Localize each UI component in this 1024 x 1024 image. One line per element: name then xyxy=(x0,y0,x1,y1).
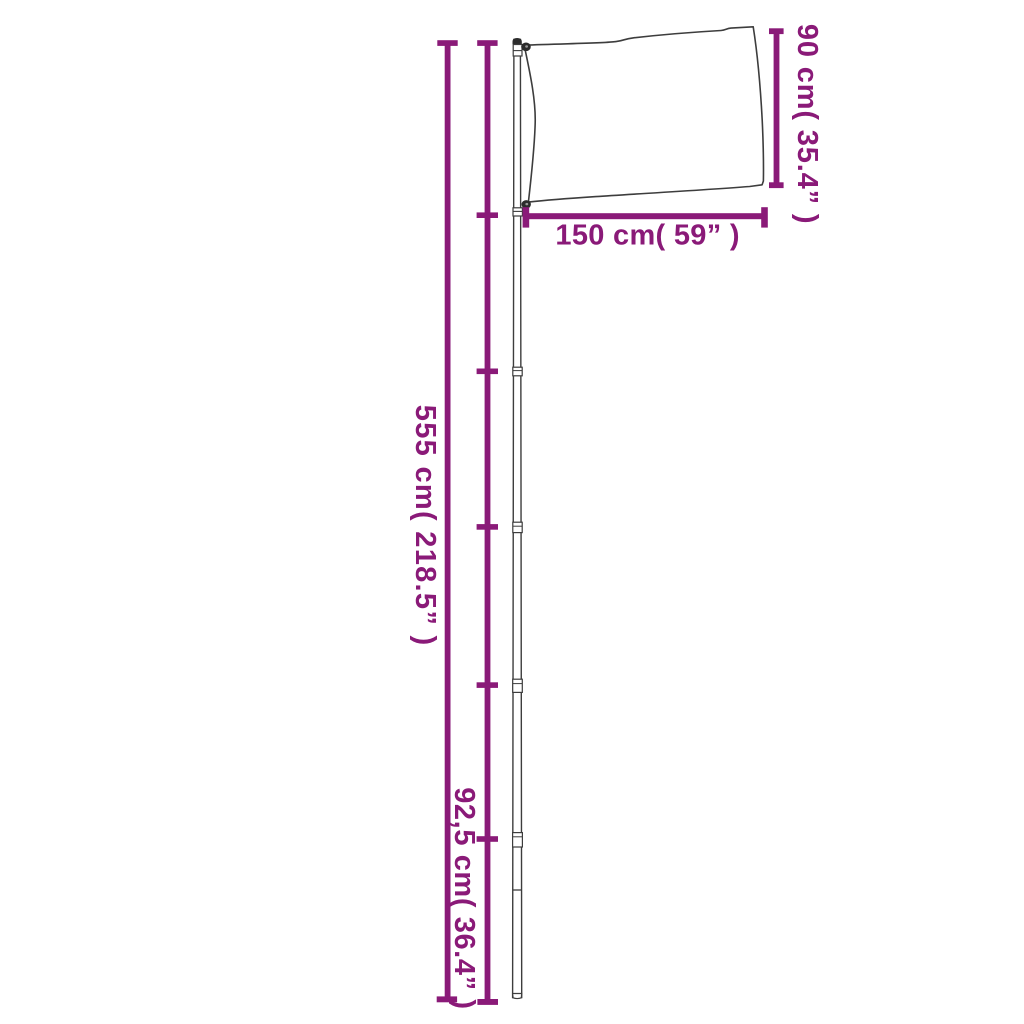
svg-text:90 cm( 35.4” ): 90 cm( 35.4” ) xyxy=(791,24,823,225)
svg-text:555 cm( 218.5” ): 555 cm( 218.5” ) xyxy=(409,405,441,647)
svg-text:150 cm( 59” ): 150 cm( 59” ) xyxy=(555,220,739,252)
svg-text:92,5 cm( 36.4” ): 92,5 cm( 36.4” ) xyxy=(448,787,480,1009)
